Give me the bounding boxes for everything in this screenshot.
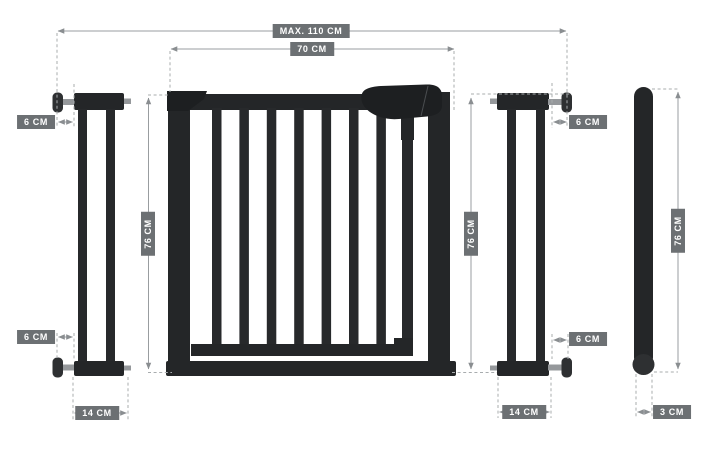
- gate-slat: [267, 108, 277, 346]
- right-extension-top-pin: [490, 99, 497, 105]
- left-extension-bar-1: [78, 109, 87, 362]
- gate-bottom-rail: [191, 344, 394, 356]
- dim-badge-left-ext-base-width: 14 CM: [75, 406, 119, 420]
- gate-right-post: [428, 92, 450, 373]
- dim-badge-left-ext-bottom-depth: 6 CM: [17, 330, 55, 344]
- gate-slat: [322, 108, 332, 346]
- gate-slat: [376, 108, 386, 346]
- left-extension-bottom-wall-knob: [53, 358, 64, 378]
- dim-left-extension-bottom-depth: [57, 333, 74, 360]
- diagram-artwork: [0, 0, 720, 450]
- side-profile-view: [633, 87, 655, 375]
- dim-badge-gate-height: 76 CM: [141, 212, 155, 256]
- left-extension-bottom-bar: [74, 361, 124, 376]
- side-profile-bar: [634, 87, 653, 367]
- dim-right-extension-bottom-depth: [552, 334, 568, 359]
- gate-front-view: [166, 84, 456, 376]
- gate-slat: [349, 108, 359, 346]
- gate-bottom-rail-step: [394, 338, 413, 356]
- dim-badge-max-total-width: MAX. 110 CM: [273, 24, 350, 38]
- left-extension-bottom-pin: [124, 366, 131, 371]
- right-extension-top-screw: [548, 99, 562, 105]
- gate-left-post: [168, 92, 190, 373]
- right-extension-top-bar: [497, 93, 549, 110]
- dim-badge-right-ext-base-width: 14 CM: [502, 405, 546, 419]
- dim-badge-right-ext-height: 76 CM: [464, 212, 478, 256]
- left-extension-top-bar: [74, 93, 124, 110]
- right-extension-bar-1: [507, 109, 516, 362]
- dim-badge-side-profile-height: 76 CM: [671, 209, 685, 253]
- dim-badge-side-profile-depth: 3 CM: [653, 405, 691, 419]
- right-extension-bar-2: [536, 109, 545, 362]
- gate-slats: [212, 108, 413, 346]
- right-extension-front-view: [490, 93, 572, 378]
- gate-slat: [294, 108, 304, 346]
- dim-badge-gate-panel-width: 70 CM: [290, 42, 334, 56]
- dim-side-profile-depth: [636, 374, 652, 418]
- dim-badge-right-ext-top-depth: 6 CM: [569, 115, 607, 129]
- dim-badge-left-ext-top-depth: 6 CM: [17, 115, 55, 129]
- gate-slat: [212, 108, 222, 346]
- right-extension-bottom-wall-knob: [562, 358, 573, 378]
- right-extension-bottom-pin: [490, 366, 497, 371]
- gate-slat: [402, 108, 413, 346]
- safety-gate-dimension-diagram: MAX. 110 CM 70 CM 6 CM 6 CM 14 CM 76 CM …: [0, 0, 720, 450]
- left-extension-bar-2: [106, 109, 115, 362]
- dim-badge-right-ext-bottom-depth: 6 CM: [569, 332, 607, 346]
- left-extension-top-pin: [124, 99, 131, 105]
- right-extension-bottom-screw: [548, 365, 562, 371]
- gate-slat: [239, 108, 249, 346]
- side-profile-foot-knob: [633, 354, 655, 375]
- gate-latch-handle: [361, 84, 442, 119]
- left-extension-top-wall-knob: [53, 93, 64, 113]
- left-extension-front-view: [53, 93, 132, 378]
- right-extension-bottom-bar: [497, 361, 549, 376]
- gate-bottom-frame-bar: [166, 361, 456, 376]
